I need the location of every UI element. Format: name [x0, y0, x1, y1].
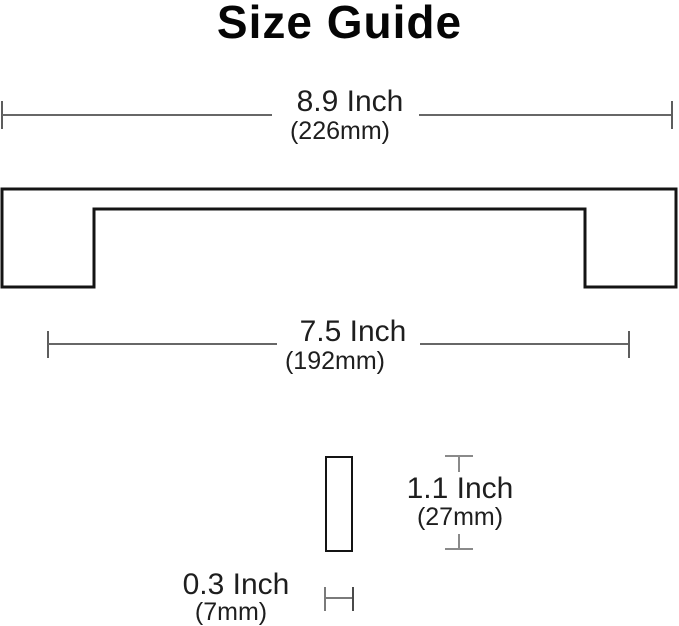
- dim-line-right-segment: [419, 114, 672, 116]
- dim-tick-right: [671, 101, 673, 129]
- dim-cap-bottom: [445, 548, 473, 550]
- dim-line-right-segment: [420, 343, 629, 345]
- handle-shape-path: [2, 189, 676, 287]
- center-to-center-mm-label: (192mm): [245, 349, 425, 374]
- thickness-mm-label: (7mm): [141, 600, 321, 625]
- handle-outline-drawing: [0, 186, 679, 290]
- dim-line-left-segment: [2, 114, 272, 116]
- overall-length-inch-label: 8.9 Inch: [250, 87, 450, 117]
- size-guide-diagram: Size Guide 8.9 Inch (226mm) 7.5 Inch (19…: [0, 0, 679, 626]
- dim-line: [326, 597, 352, 599]
- height-inch-label: 1.1 Inch: [360, 474, 560, 504]
- height-mm-label: (27mm): [370, 505, 550, 530]
- dim-tick-left: [324, 587, 326, 611]
- dim-line-left-segment: [48, 343, 277, 345]
- dim-tick-right: [628, 331, 630, 358]
- page-title: Size Guide: [0, 0, 679, 49]
- dim-stem-top: [458, 456, 460, 472]
- dim-stem-bottom: [458, 534, 460, 549]
- handle-cross-section: [325, 456, 353, 552]
- dim-tick-right: [352, 587, 354, 611]
- overall-length-mm-label: (226mm): [250, 119, 430, 144]
- thickness-inch-label: 0.3 Inch: [136, 570, 336, 600]
